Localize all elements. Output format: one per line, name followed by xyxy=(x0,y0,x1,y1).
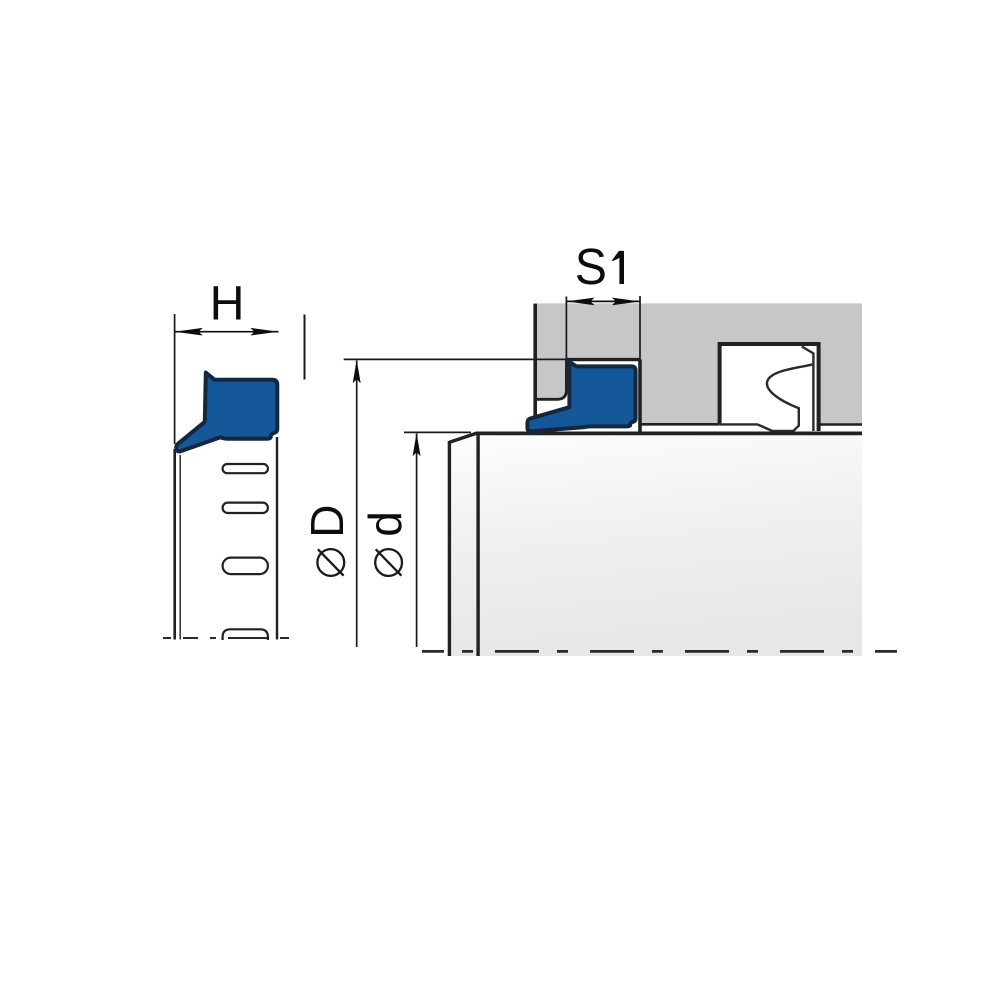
svg-text:S: S xyxy=(575,238,607,296)
svg-text:H: H xyxy=(210,277,245,331)
svg-text:D: D xyxy=(301,504,353,537)
svg-text:d: d xyxy=(359,511,411,537)
